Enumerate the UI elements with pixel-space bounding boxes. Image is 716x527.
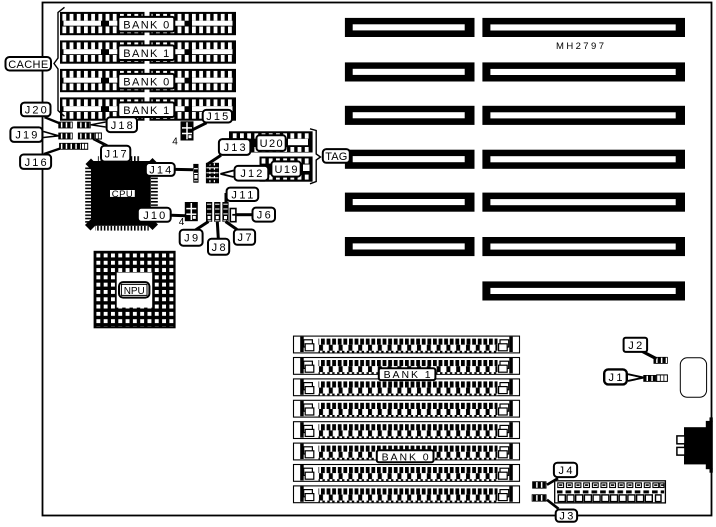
svg-text:J8: J8 [212,242,226,254]
svg-text:TAG: TAG [325,151,347,163]
svg-text:J9: J9 [184,233,198,245]
svg-text:U19: U19 [275,164,298,176]
svg-text:U20: U20 [260,138,283,150]
svg-text:J18: J18 [111,120,133,132]
svg-text:BANK 1: BANK 1 [123,48,169,60]
svg-text:J14: J14 [149,164,171,176]
svg-text:J15: J15 [206,111,228,123]
svg-text:J4: J4 [559,465,573,477]
svg-text:J10: J10 [143,210,165,222]
svg-text:J20: J20 [25,105,47,117]
svg-text:J6: J6 [257,210,271,222]
svg-text:J7: J7 [238,232,252,244]
svg-text:J1: J1 [609,372,623,384]
svg-text:J12: J12 [240,168,262,180]
svg-text:4: 4 [172,137,178,148]
svg-text:J19: J19 [15,130,37,142]
svg-text:J2: J2 [628,340,642,352]
svg-text:BANK 0: BANK 0 [123,76,169,88]
svg-text:CPU: CPU [112,189,133,200]
svg-text:J3: J3 [559,511,573,523]
svg-text:NPU: NPU [124,286,145,297]
svg-text:MH2797: MH2797 [556,41,604,52]
svg-text:CACHE: CACHE [8,59,48,71]
svg-text:J11: J11 [231,189,253,201]
svg-text:BANK 0: BANK 0 [123,19,169,31]
svg-text:BANK 1: BANK 1 [123,105,169,117]
svg-text:J13: J13 [224,142,246,154]
svg-text:4: 4 [179,217,185,228]
svg-text:J17: J17 [105,149,127,161]
svg-text:J16: J16 [25,157,47,169]
